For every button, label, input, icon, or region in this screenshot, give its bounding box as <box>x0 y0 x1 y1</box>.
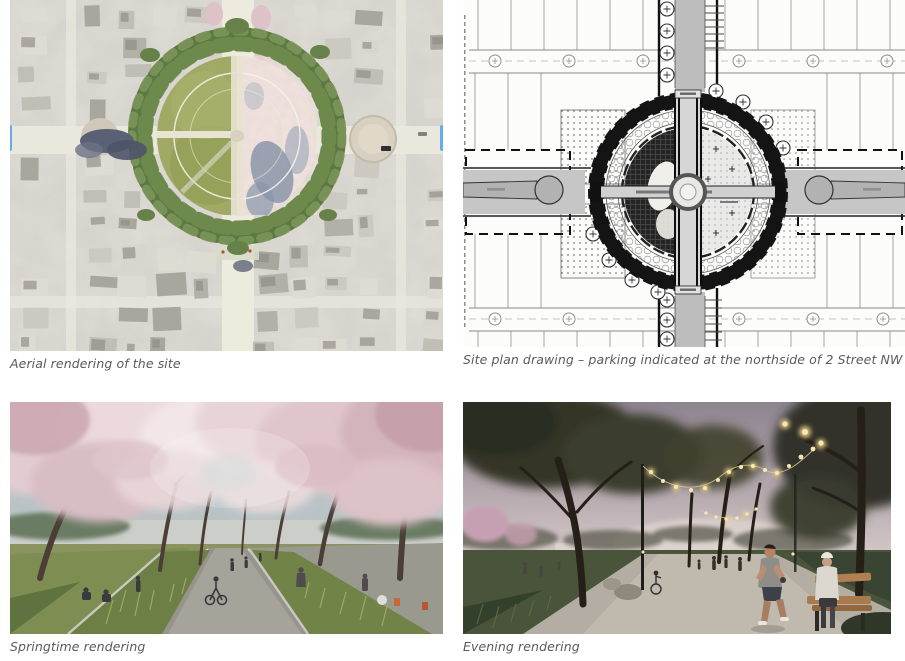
springtime-illustration <box>10 402 443 634</box>
left-edge-marker <box>10 125 12 151</box>
figure-site-plan: Site plan drawing – parking indicated at… <box>463 0 905 369</box>
site-plan-image <box>463 0 905 347</box>
caption-springtime: Springtime rendering <box>10 639 443 656</box>
right-edge-marker <box>440 125 443 151</box>
evening-rendering-image <box>463 402 891 634</box>
aerial-illustration <box>10 0 443 351</box>
page: Aerial rendering of the site <box>0 0 905 661</box>
caption-site-plan: Site plan drawing – parking indicated at… <box>463 352 905 369</box>
caption-evening: Evening rendering <box>463 639 891 656</box>
aerial-rendering-image <box>10 0 443 351</box>
evening-illustration <box>463 402 891 634</box>
figure-evening: Evening rendering <box>463 402 891 656</box>
springtime-rendering-image <box>10 402 443 634</box>
figure-aerial: Aerial rendering of the site <box>10 0 443 373</box>
caption-aerial: Aerial rendering of the site <box>10 356 443 373</box>
figure-springtime: Springtime rendering <box>10 402 443 656</box>
site-plan-illustration <box>463 0 905 347</box>
